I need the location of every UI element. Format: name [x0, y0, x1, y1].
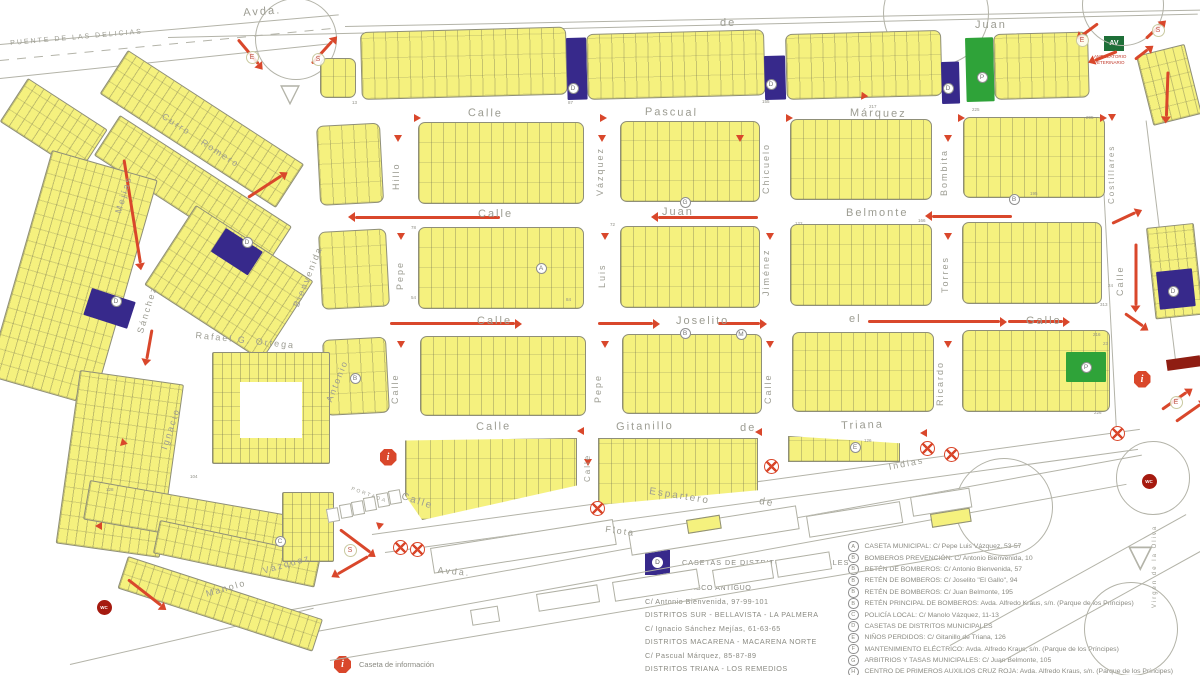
one-way-tick	[944, 135, 952, 142]
legend-service-text: CASETAS DE DISTRITOS MUNICIPALES	[865, 623, 993, 630]
one-way-tick	[601, 341, 609, 348]
legend-service-letter: B	[848, 576, 859, 587]
street-label: Virgen de la Oliva	[1152, 525, 1158, 608]
legend-district-line: C/ Pascual Márquez, 85-87-89	[645, 649, 875, 663]
house-number: 24	[1108, 283, 1113, 288]
feria-map-canvas: AV AMBULATORIO VETERINARIO D CASETAS DE …	[0, 0, 1200, 675]
no-entry-icon	[1110, 426, 1125, 441]
traffic-island: ▽	[1128, 540, 1153, 572]
caseta-block	[622, 334, 762, 414]
house-number: 217	[869, 104, 877, 109]
one-way-tick	[766, 233, 774, 240]
street-label: Calle	[478, 209, 513, 220]
street-label: Calle	[584, 454, 592, 482]
direction-arrow	[1111, 211, 1136, 225]
one-way-tick	[600, 114, 607, 122]
exit-marker: S	[344, 544, 357, 557]
street-label: de	[720, 18, 736, 29]
service-marker-b: B	[350, 373, 361, 384]
no-entry-icon	[920, 441, 935, 456]
direction-arrow	[932, 215, 1012, 218]
direction-arrow	[598, 322, 653, 325]
service-marker-b: B	[1009, 194, 1020, 205]
caseta-block	[318, 228, 390, 309]
one-way-tick	[1108, 114, 1116, 121]
service-marker-a: A	[536, 263, 547, 274]
structure-outline	[470, 606, 500, 626]
caseta-block	[790, 119, 932, 200]
one-way-tick	[375, 522, 384, 530]
exit-marker: S	[312, 53, 325, 66]
roundabout	[1084, 582, 1178, 675]
service-marker-d: D	[766, 79, 777, 90]
street-label: Joselito	[676, 316, 729, 327]
house-number: 226	[1094, 410, 1102, 415]
street-label: Triana	[841, 420, 884, 432]
house-number: 72	[610, 222, 615, 227]
street-label: Belmonte	[846, 208, 908, 219]
street-label: Calle	[476, 421, 511, 433]
legend-service-text: POLICÍA LOCAL: C/ Manolo Vázquez, 11-13	[865, 612, 999, 619]
legend-service-letter: D	[848, 621, 859, 632]
legend-service-text: ARBITRIOS Y TASAS MUNICIPALES: C/ Juan B…	[865, 657, 1052, 664]
street-label: Luis	[598, 263, 607, 288]
house-number: 84	[566, 297, 571, 302]
house-number: 13	[352, 100, 357, 105]
district-caseta-block	[764, 55, 786, 100]
no-entry-icon	[410, 542, 425, 557]
caseta-block	[420, 336, 586, 416]
legend-district-line: DISTRITOS MACARENA - MACARENA NORTE	[645, 635, 875, 649]
legend-service-text: RETÉN DE BOMBEROS: C/ Joselito "El Gallo…	[865, 577, 1018, 584]
caseta-block	[360, 27, 568, 100]
house-number: 54	[411, 295, 416, 300]
legend-info-label: Caseta de información	[359, 660, 434, 669]
street-label: PUENTE DE LAS DELICIAS	[10, 28, 143, 47]
legend-service-letter: C	[848, 610, 859, 621]
street-label: Jiménez	[762, 248, 771, 296]
direction-arrow	[337, 555, 369, 575]
street-label: de	[758, 497, 775, 509]
veterinary-caption-line2: VETERINARIO	[1094, 60, 1125, 65]
house-number: 23	[1103, 341, 1108, 346]
house-number: 195	[1030, 191, 1038, 196]
caseta-block	[790, 224, 932, 306]
street-label: Hillo	[392, 162, 401, 190]
service-marker-c: C	[275, 536, 286, 547]
legend-service-letter: H	[848, 667, 859, 675]
house-number: 122	[795, 221, 803, 226]
portada-gate-box	[388, 489, 402, 505]
structure-outline	[430, 519, 617, 574]
street-label: Calle	[391, 373, 400, 404]
direction-arrow	[145, 329, 153, 359]
caseta-block	[962, 222, 1102, 304]
street-label: Gallo	[1026, 316, 1062, 327]
wc-icon: WC	[1142, 474, 1157, 489]
info-icon: i	[380, 449, 397, 466]
caseta-block	[320, 58, 356, 98]
house-number: 126	[864, 438, 872, 443]
entrance-marker: E	[1170, 396, 1183, 409]
one-way-tick	[766, 341, 774, 348]
street-label: Ricardo	[936, 361, 945, 406]
street-label: Sánchez	[136, 285, 159, 335]
house-number: 155	[762, 99, 770, 104]
house-number: 104	[190, 474, 198, 479]
legend-service-text: NIÑOS PERDIDOS: C/ Gitanillo de Triana, …	[865, 634, 1006, 641]
road-line	[345, 9, 1200, 27]
caseta-block	[586, 29, 766, 100]
house-number: 128	[106, 487, 114, 492]
service-marker-b: B	[680, 328, 691, 339]
street-label: Gitanillo	[616, 421, 674, 433]
legend-service-text: RETÉN DE BOMBEROS: C/ Juan Belmonte, 195	[865, 589, 1013, 596]
legend-service-letter: G	[848, 655, 859, 666]
street-label: Márquez	[850, 108, 907, 120]
street-label: Pascual	[645, 107, 698, 119]
caseta-block	[620, 121, 760, 202]
one-way-tick	[394, 135, 402, 142]
caseta-block	[620, 226, 760, 308]
service-marker-d: D	[568, 83, 579, 94]
legend-service-letter: B	[848, 598, 859, 609]
street-label: Juan	[662, 207, 694, 218]
house-number: 87	[568, 100, 573, 105]
service-marker-d: D	[943, 83, 954, 94]
direction-arrow	[1135, 244, 1138, 306]
courtyard	[240, 382, 302, 438]
wc-icon: WC	[97, 600, 112, 615]
exit-marker: S	[1152, 24, 1165, 37]
one-way-tick	[736, 135, 744, 142]
one-way-tick	[944, 233, 952, 240]
entrance-marker: E	[1076, 34, 1089, 47]
one-way-tick	[598, 135, 606, 142]
street-label: el	[849, 314, 862, 325]
service-marker-d: D	[242, 237, 253, 248]
traffic-island: ▽	[280, 80, 300, 106]
no-entry-icon	[393, 540, 408, 555]
building-block	[0, 150, 158, 406]
service-marker-m: M	[736, 329, 747, 340]
caseta-block	[418, 122, 584, 204]
one-way-tick	[920, 429, 927, 437]
no-entry-icon	[590, 501, 605, 516]
street-label: Calle	[468, 108, 503, 120]
legend-service-text: MANTENIMIENTO ELÉCTRICO: Avda. Alfredo K…	[865, 646, 1119, 653]
one-way-tick	[786, 114, 793, 122]
service-marker-d: D	[1168, 286, 1179, 297]
one-way-tick	[577, 427, 584, 435]
house-number: 225	[972, 107, 980, 112]
one-way-tick	[1100, 114, 1107, 122]
info-icon: i	[1134, 371, 1151, 388]
street-label: Juan	[975, 20, 1007, 31]
legend-service-letter: A	[848, 541, 859, 552]
caseta-block	[785, 30, 943, 100]
street-label: Calle	[477, 316, 512, 327]
marker-bar	[1166, 355, 1200, 371]
legend-service-letter: B	[848, 553, 859, 564]
house-number: 216	[1093, 332, 1101, 337]
service-marker-d: D	[111, 296, 122, 307]
one-way-tick	[958, 114, 965, 122]
legend-district-line: DISTRITOS SUR - BELLAVISTA - LA PALMERA	[645, 608, 875, 622]
street-label: Calle	[1116, 265, 1125, 296]
one-way-tick	[601, 233, 609, 240]
no-entry-icon	[944, 447, 959, 462]
caseta-block	[788, 436, 900, 462]
street-label: Avda.	[437, 566, 471, 578]
legend-district-line: C/ Ignacio Sánchez Mejías, 61-63-65	[645, 622, 875, 636]
entrance-marker: E	[246, 51, 259, 64]
service-marker-g: G	[680, 197, 691, 208]
house-number: 313	[1100, 302, 1108, 307]
legend-service-letter: E	[848, 633, 859, 644]
service-marker-e: E	[850, 442, 861, 453]
legend-service-letter: B	[848, 587, 859, 598]
one-way-tick	[397, 341, 405, 348]
street-label: Pepe	[594, 374, 603, 403]
house-number: 295	[1086, 115, 1094, 120]
one-way-tick	[414, 114, 421, 122]
house-number: 166	[918, 218, 926, 223]
direction-arrow	[1124, 312, 1144, 327]
caseta-block	[792, 332, 934, 412]
street-label: Vázquez	[596, 147, 605, 196]
street-label: Chicuelo	[762, 143, 771, 194]
legend-district-lines: DISTRITO CASCO ANTIGUOC/ Antonio Bienven…	[645, 581, 875, 675]
no-entry-icon	[764, 459, 779, 474]
one-way-tick	[944, 341, 952, 348]
street-label: de	[740, 423, 756, 434]
caseta-block	[316, 123, 384, 206]
caseta-block	[418, 227, 584, 309]
street-label: Costillares	[1108, 145, 1116, 204]
street-label: Bombita	[940, 149, 949, 196]
legend-district-line: DISTRITOS TRIANA - LOS REMEDIOS	[645, 662, 875, 675]
parking-block	[965, 37, 995, 102]
legend-info-caseta: i Caseta de información	[334, 656, 434, 673]
street-label: Calle	[764, 373, 773, 404]
legend-service-letter: F	[848, 644, 859, 655]
one-way-tick	[95, 522, 102, 530]
house-number: 78	[411, 225, 416, 230]
direction-arrow	[868, 320, 1000, 323]
one-way-tick	[397, 233, 405, 240]
caseta-block	[963, 117, 1105, 198]
street-label: Pepe	[396, 261, 405, 290]
portada-gate-box	[326, 507, 340, 523]
service-marker-p: P	[1081, 362, 1092, 373]
service-marker-p: P	[977, 72, 988, 83]
street-label: Torres	[941, 256, 950, 293]
